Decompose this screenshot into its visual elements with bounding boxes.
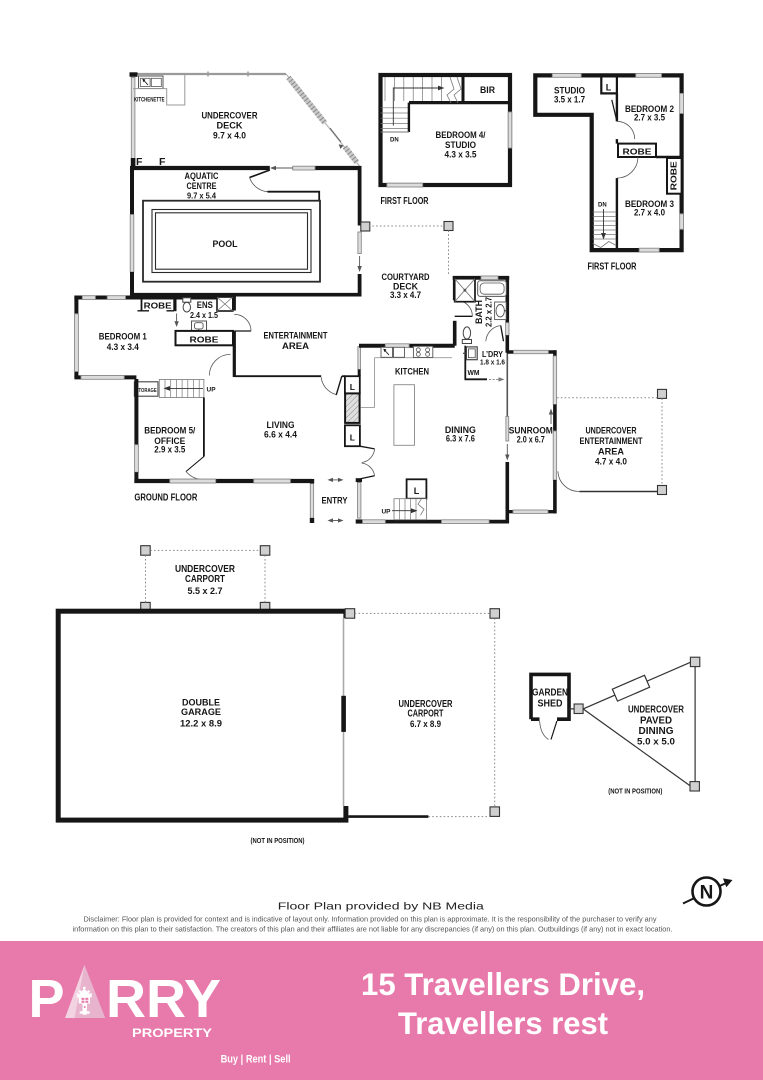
svg-text:CARPORT: CARPORT <box>185 574 225 585</box>
svg-text:P: P <box>29 969 65 1029</box>
svg-text:PAVED: PAVED <box>640 716 672 727</box>
svg-text:L: L <box>414 486 420 496</box>
svg-text:KITCHENETTE: KITCHENETTE <box>134 98 165 104</box>
svg-text:4.7 x 4.0: 4.7 x 4.0 <box>595 457 627 467</box>
svg-text:2.7 x 4.0: 2.7 x 4.0 <box>634 208 665 218</box>
svg-text:5.0 x 5.0: 5.0 x 5.0 <box>637 737 675 748</box>
svg-text:2.4 x 1.5: 2.4 x 1.5 <box>190 310 218 320</box>
svg-text:3.3 x 4.7: 3.3 x 4.7 <box>390 290 421 300</box>
svg-text:9.7 x 5.4: 9.7 x 5.4 <box>187 191 217 200</box>
svg-text:DINING: DINING <box>639 726 674 737</box>
svg-text:PROPERTY: PROPERTY <box>132 1028 212 1040</box>
svg-text:6.7 x 8.9: 6.7 x 8.9 <box>410 719 441 729</box>
svg-text:3.5 x 1.7: 3.5 x 1.7 <box>554 95 585 105</box>
svg-text:GARAGE: GARAGE <box>181 707 221 718</box>
svg-text:KITCHEN: KITCHEN <box>395 367 429 378</box>
svg-text:ROBE: ROBE <box>669 161 679 190</box>
svg-text:ROBE: ROBE <box>190 335 219 345</box>
svg-text:(NOT IN POSITION): (NOT IN POSITION) <box>251 838 305 845</box>
svg-text:UP: UP <box>381 509 391 516</box>
svg-text:BEDROOM 5/: BEDROOM 5/ <box>144 426 195 437</box>
svg-text:FIRST FLOOR: FIRST FLOOR <box>588 261 637 273</box>
svg-text:RRY: RRY <box>106 969 221 1029</box>
svg-text:15 Travellers Drive,: 15 Travellers Drive, <box>361 966 645 1002</box>
svg-text:ENTERTAINMENT: ENTERTAINMENT <box>580 436 643 447</box>
svg-text:6.3 x 7.6: 6.3 x 7.6 <box>446 434 475 444</box>
svg-text:(NOT IN POSITION): (NOT IN POSITION) <box>608 789 662 796</box>
svg-text:2.0 x 6.7: 2.0 x 6.7 <box>517 435 545 445</box>
svg-text:12.2 x 8.9: 12.2 x 8.9 <box>180 719 222 729</box>
svg-text:GARDEN: GARDEN <box>532 688 568 699</box>
svg-text:Floor Plan provided by NB Medi: Floor Plan provided by NB Media <box>278 901 484 913</box>
svg-text:Buy | Rent | Sell: Buy | Rent | Sell <box>221 1054 291 1066</box>
svg-text:ENTERTAINMENT: ENTERTAINMENT <box>264 331 328 342</box>
svg-text:N: N <box>700 883 714 904</box>
svg-text:4.3 x 3.5: 4.3 x 3.5 <box>445 150 477 160</box>
svg-text:ROBE: ROBE <box>623 147 652 157</box>
svg-text:Travellers rest: Travellers rest <box>398 1005 609 1041</box>
svg-text:WM: WM <box>468 368 480 377</box>
svg-text:ROBE: ROBE <box>144 301 172 311</box>
svg-text:2.7 x 3.5: 2.7 x 3.5 <box>634 113 665 123</box>
svg-text:9.7 x 4.0: 9.7 x 4.0 <box>213 131 246 141</box>
svg-text:BIR: BIR <box>480 85 495 96</box>
svg-text:STORAGE: STORAGE <box>136 388 157 394</box>
svg-text:AQUATIC: AQUATIC <box>185 171 219 181</box>
svg-text:UNDERCOVER: UNDERCOVER <box>586 426 637 437</box>
svg-text:UNDERCOVER: UNDERCOVER <box>628 705 685 716</box>
svg-text:GROUND FLOOR: GROUND FLOOR <box>134 492 197 504</box>
svg-text:CARPORT: CARPORT <box>408 709 444 720</box>
svg-text:CENTRE: CENTRE <box>187 181 217 191</box>
svg-text:Disclaimer: Floor plan is prov: Disclaimer: Floor plan is provided for c… <box>84 917 658 924</box>
svg-text:5.5 x 2.7: 5.5 x 2.7 <box>188 586 223 597</box>
svg-text:BEDROOM 1: BEDROOM 1 <box>99 332 148 343</box>
svg-text:4.3 x 3.4: 4.3 x 3.4 <box>107 342 139 352</box>
svg-text:UP: UP <box>207 387 217 394</box>
svg-text:information on this plan to th: information on this plan to their satisf… <box>73 927 673 934</box>
svg-text:FIRST FLOOR: FIRST FLOOR <box>381 195 429 207</box>
svg-text:SHED: SHED <box>538 699 563 710</box>
svg-text:DN: DN <box>598 203 607 209</box>
svg-text:ENTRY: ENTRY <box>322 496 348 506</box>
svg-text:L: L <box>606 83 612 93</box>
svg-text:L: L <box>350 433 355 443</box>
svg-text:DN: DN <box>390 138 399 144</box>
svg-text:2.2 x 2.7: 2.2 x 2.7 <box>485 296 494 327</box>
svg-text:6.6 x 4.4: 6.6 x 4.4 <box>264 430 297 440</box>
svg-text:BATH: BATH <box>474 300 484 324</box>
svg-text:POOL: POOL <box>213 239 238 250</box>
svg-text:L: L <box>350 382 355 392</box>
svg-text:2.9 x 3.5: 2.9 x 3.5 <box>154 445 185 455</box>
svg-text:1.8 x 1.6: 1.8 x 1.6 <box>480 358 505 367</box>
svg-text:AREA: AREA <box>282 341 309 352</box>
